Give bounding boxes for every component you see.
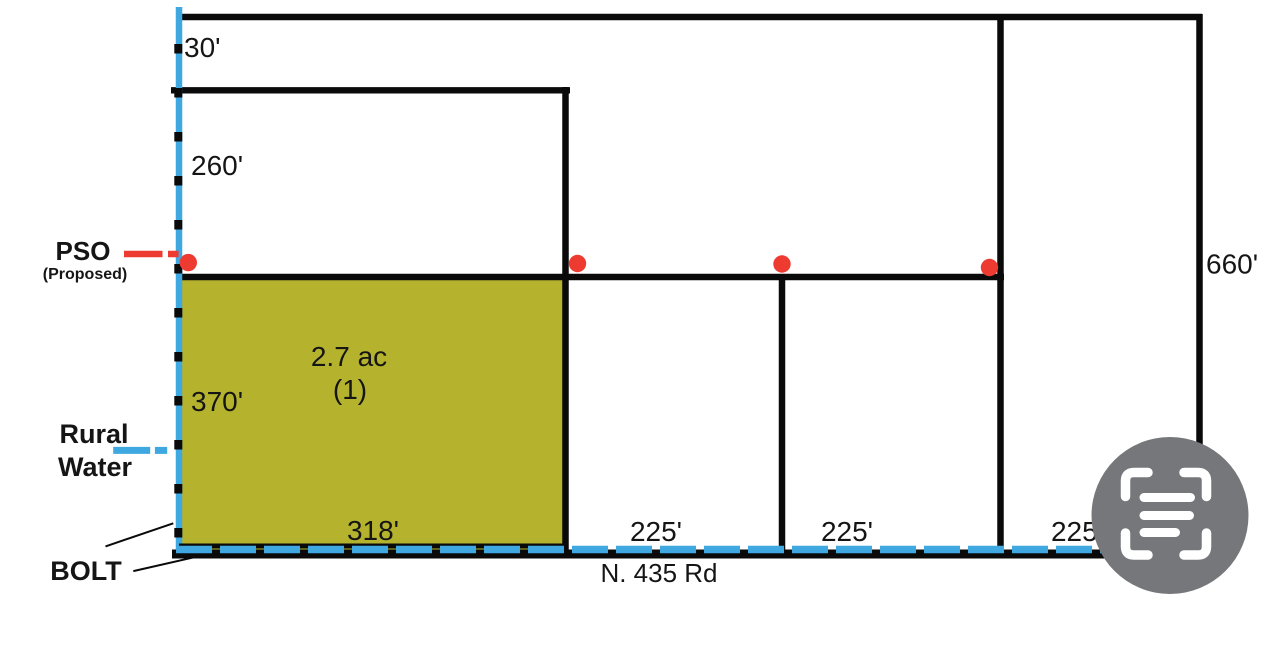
svg-text:225': 225' xyxy=(821,516,873,547)
svg-text:(1): (1) xyxy=(333,374,367,405)
svg-text:318': 318' xyxy=(347,515,399,546)
svg-text:260': 260' xyxy=(191,150,243,181)
svg-text:370': 370' xyxy=(191,386,243,417)
svg-text:(Proposed): (Proposed) xyxy=(43,266,127,283)
svg-text:660': 660' xyxy=(1206,249,1258,280)
svg-text:2.7 ac: 2.7 ac xyxy=(311,341,387,372)
svg-text:Rural: Rural xyxy=(59,419,128,449)
svg-text:30': 30' xyxy=(184,32,221,63)
svg-text:225': 225' xyxy=(630,516,682,547)
svg-text:N. 435 Rd: N. 435 Rd xyxy=(600,558,717,588)
svg-text:BOLT: BOLT xyxy=(50,556,122,586)
svg-text:Water: Water xyxy=(58,452,133,482)
svg-text:PSO: PSO xyxy=(56,236,111,266)
